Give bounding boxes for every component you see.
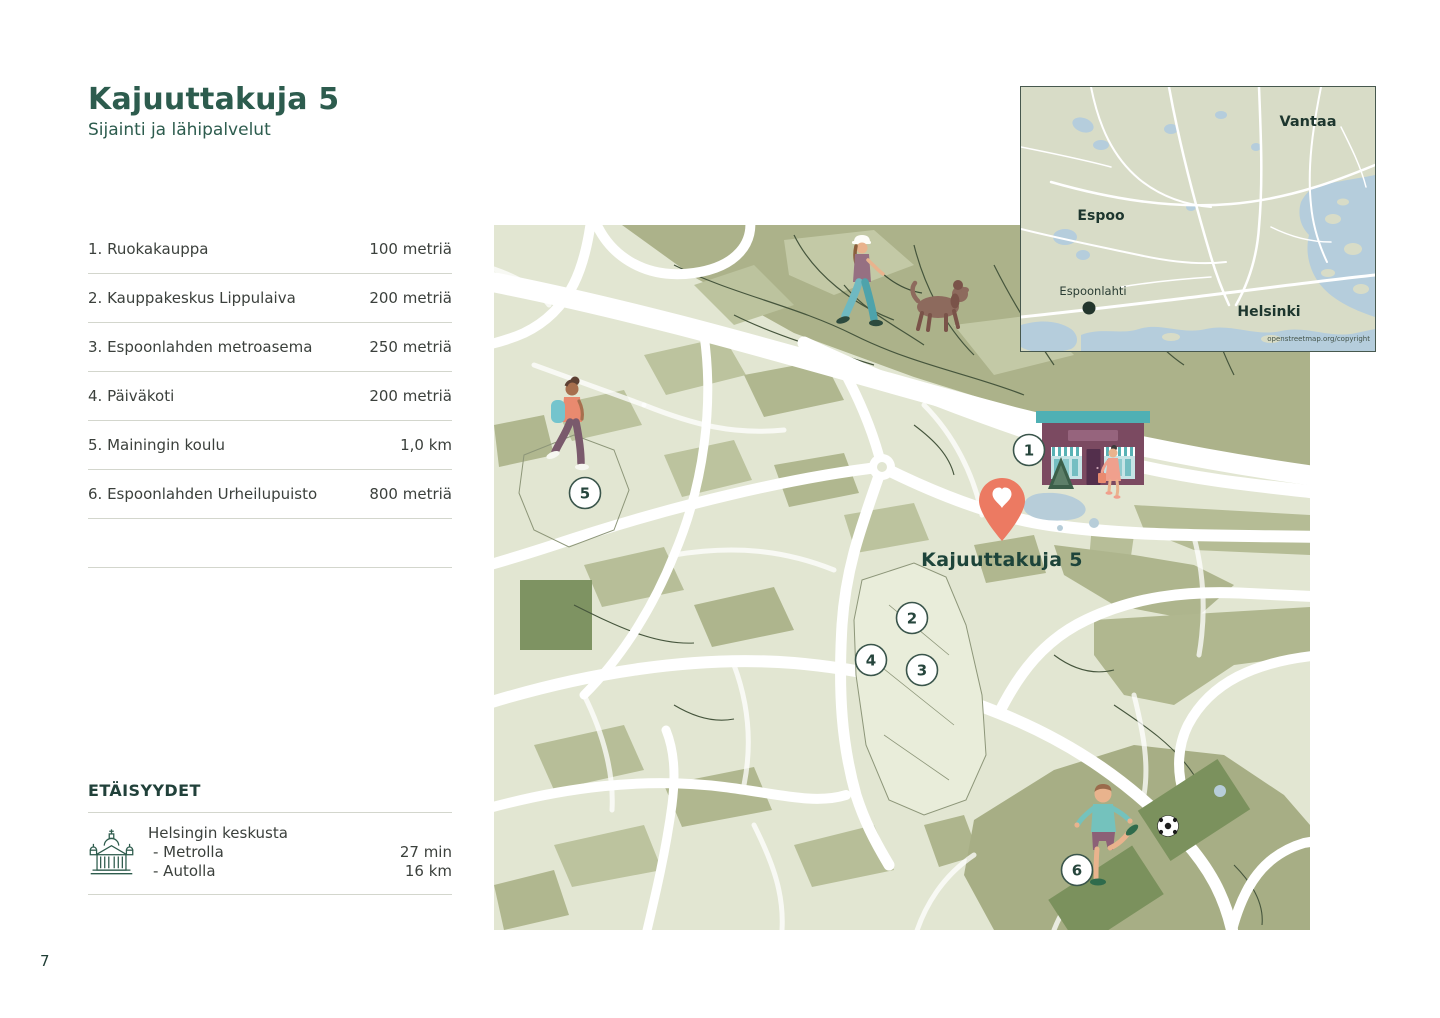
service-row: 5. Mainingin koulu 1,0 km bbox=[88, 421, 452, 470]
services-list: 1. Ruokakauppa 100 metriä 2. Kauppakesku… bbox=[88, 225, 452, 568]
svg-text:3: 3 bbox=[917, 662, 927, 680]
service-row: 6. Espoonlahden Urheilupuisto 800 metriä bbox=[88, 470, 452, 519]
service-distance: 100 metriä bbox=[369, 240, 452, 258]
service-label: 5. Mainingin koulu bbox=[88, 436, 225, 454]
map-marker-4: 4 bbox=[856, 645, 887, 676]
service-distance: 800 metriä bbox=[369, 485, 452, 503]
distances-heading: ETÄISYYDET bbox=[88, 781, 452, 800]
service-distance: 200 metriä bbox=[369, 289, 452, 307]
service-label: 2. Kauppakeskus Lippulaiva bbox=[88, 289, 296, 307]
page-title: Kajuuttakuja 5 bbox=[88, 82, 339, 117]
service-label: 6. Espoonlahden Urheilupuisto bbox=[88, 485, 317, 503]
distances-section: ETÄISYYDET Helsingin keskusta - Metrolla… bbox=[88, 781, 452, 895]
espoonlahti-dot-marker bbox=[1083, 302, 1096, 315]
service-label: 1. Ruokakauppa bbox=[88, 240, 208, 258]
grocery-shop-illustration bbox=[1036, 411, 1150, 489]
helsinki-cathedral-icon bbox=[88, 826, 135, 878]
region-inset-map: Vantaa Espoo Espoonlahti Helsinki openst… bbox=[1020, 86, 1376, 352]
inset-label-espoo: Espoo bbox=[1077, 208, 1125, 224]
soccer-ball-icon bbox=[1158, 816, 1179, 837]
map-marker-1: 1 bbox=[1014, 435, 1045, 466]
service-label: 3. Espoonlahden metroasema bbox=[88, 338, 312, 356]
map-marker-6: 6 bbox=[1062, 855, 1093, 886]
destination-label: Helsingin keskusta bbox=[148, 824, 452, 843]
service-label: 4. Päiväkoti bbox=[88, 387, 174, 405]
service-distance: 1,0 km bbox=[400, 436, 452, 454]
service-row-empty bbox=[88, 519, 452, 568]
svg-text:4: 4 bbox=[866, 652, 876, 670]
svg-text:1: 1 bbox=[1024, 442, 1034, 460]
map-marker-3: 3 bbox=[907, 655, 938, 686]
service-row: 3. Espoonlahden metroasema 250 metriä bbox=[88, 323, 452, 372]
inset-label-vantaa: Vantaa bbox=[1279, 114, 1336, 130]
service-row: 1. Ruokakauppa 100 metriä bbox=[88, 225, 452, 274]
map-marker-2: 2 bbox=[897, 603, 928, 634]
page-subtitle: Sijainti ja lähipalvelut bbox=[88, 120, 271, 140]
svg-text:2: 2 bbox=[907, 610, 917, 628]
mode-value: 16 km bbox=[405, 862, 452, 881]
inset-label-espoonlahti: Espoonlahti bbox=[1059, 284, 1126, 298]
distances-row: Helsingin keskusta - Metrolla 27 min - A… bbox=[88, 812, 452, 895]
mode-label: - Autolla bbox=[153, 862, 216, 881]
service-distance: 200 metriä bbox=[369, 387, 452, 405]
svg-text:6: 6 bbox=[1072, 862, 1082, 880]
page-number: 7 bbox=[40, 952, 50, 970]
mode-label: - Metrolla bbox=[153, 843, 224, 862]
service-row: 4. Päiväkoti 200 metriä bbox=[88, 372, 452, 421]
mode-value: 27 min bbox=[400, 843, 452, 862]
inset-label-helsinki: Helsinki bbox=[1237, 304, 1300, 320]
pin-label: Kajuuttakuja 5 bbox=[921, 549, 1083, 571]
svg-text:5: 5 bbox=[580, 485, 590, 503]
osm-copyright-link[interactable]: openstreetmap.org/copyright bbox=[1267, 335, 1370, 343]
service-distance: 250 metriä bbox=[369, 338, 452, 356]
service-row: 2. Kauppakeskus Lippulaiva 200 metriä bbox=[88, 274, 452, 323]
map-marker-5: 5 bbox=[570, 478, 601, 509]
